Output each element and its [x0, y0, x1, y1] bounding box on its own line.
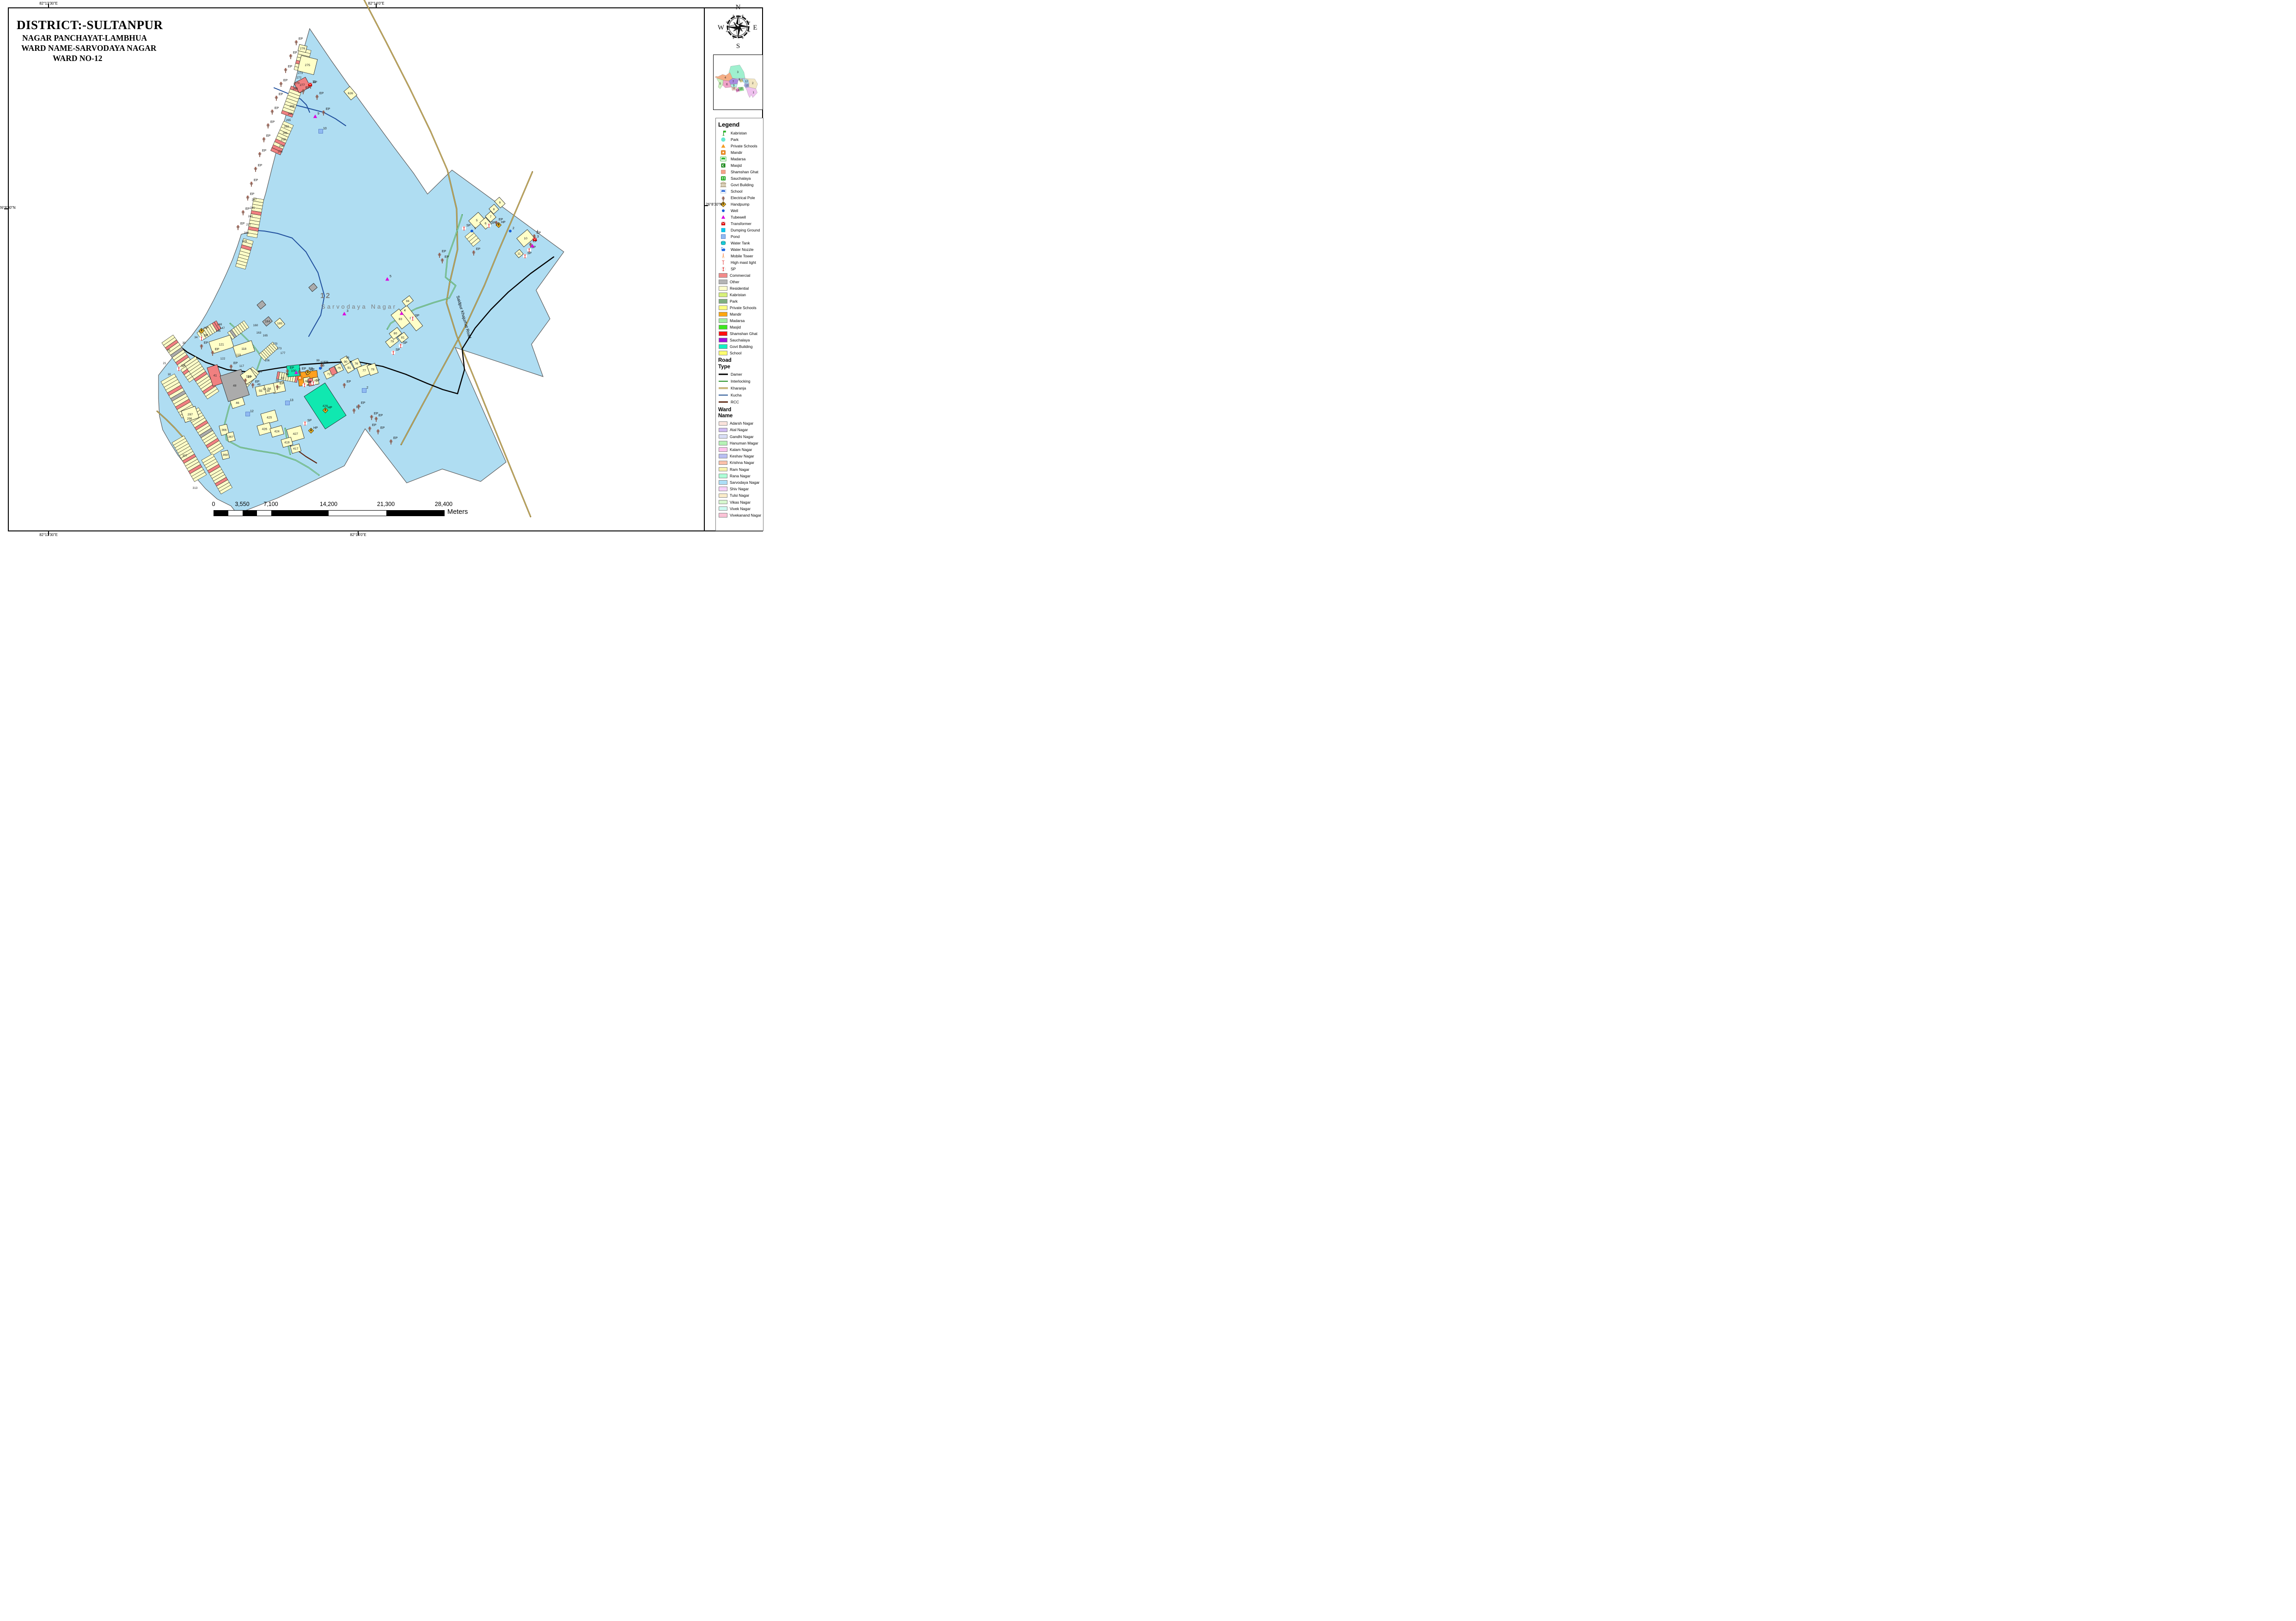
legend-ward-sarvodaya-nagar: Sarvodaya Nagar [718, 479, 762, 486]
scale-segment [214, 511, 228, 516]
parcel-number: 241 [248, 215, 253, 218]
parcel-number: 367 [228, 436, 234, 439]
feature-label: 6 [323, 364, 324, 367]
legend-item-label: Hanuman Magar [730, 441, 758, 445]
road-line-sample [718, 400, 728, 404]
sp-icon [177, 366, 181, 371]
ward-swatch [719, 441, 727, 445]
masjid-icon [718, 162, 728, 169]
feature-label: EP [305, 86, 310, 90]
feature-label: 2 [513, 227, 514, 230]
scale-bar: 03,5507,10014,20021,30028,400 Meters [203, 501, 481, 522]
parcel-number: 427 [293, 433, 299, 436]
legend-item-label: Govt Building [730, 344, 752, 349]
parcel-number: 160 [253, 324, 258, 327]
compass-s: S [736, 43, 740, 50]
sp-icon [302, 383, 306, 387]
legend-item-label: Sarvodaya Nagar [730, 480, 760, 485]
feature-label: EP [279, 93, 283, 96]
feature-label: 4 [404, 309, 406, 312]
legend-item-label: Pond [731, 234, 739, 239]
ep-icon [718, 195, 728, 201]
feature-label: EP [255, 380, 260, 384]
feature-label: EP [245, 207, 250, 211]
parcel-number: 53 [263, 388, 266, 391]
compass-rose: NESW [715, 3, 761, 51]
electrical-pole-icon [263, 138, 266, 142]
feature-label: SP [403, 341, 408, 345]
legend-ward-ram-nagar: Ram Nagar [718, 466, 762, 473]
feature-label: EP [262, 149, 267, 152]
parcel-number: 425 [267, 416, 272, 419]
legend-item-label: Mandir [730, 312, 741, 317]
electrical-pole-icon [289, 55, 293, 59]
parcel-number: 626 [348, 92, 354, 95]
parcel-number: 229 [242, 240, 247, 243]
legend-item-label: Shiv Nagar [730, 487, 749, 491]
legend-road-kharanja: Kharanja [718, 385, 762, 392]
legend-item-label: Sauchalaya [730, 338, 750, 342]
legend-fill-items: CommercialOtherResidentialKabristanParkP… [718, 272, 762, 356]
legend-item-label: Kabristan [731, 131, 747, 135]
parcel-number: 297 [188, 413, 193, 416]
graticule-tick [48, 531, 49, 536]
legend-item-kabristan: Kabristan [718, 130, 762, 136]
feature-label: EP [442, 250, 446, 253]
feature-label: EP [270, 121, 275, 124]
feature-label: 1 [474, 227, 476, 230]
well-icon [319, 367, 322, 370]
parcel-number: 184 [265, 320, 270, 323]
parcel-number: 277 [299, 84, 305, 87]
feature-label: EP [290, 366, 294, 370]
feature-label: EP [204, 341, 208, 345]
parcel-number: 78 [371, 368, 374, 371]
legend-fill-shamshan-ghat: Shamshan Ghat [718, 330, 762, 337]
legend-item-govt: Govt Building [718, 182, 762, 188]
legend-fill-govt-building: Govt Building [718, 343, 762, 350]
index-ward-number: 14 [736, 89, 739, 92]
graticule-tick [4, 208, 8, 209]
feature-label: SP [307, 419, 312, 422]
legend-fill-private-schools: Private Schools [718, 305, 762, 311]
parcel-number: 258 [281, 138, 286, 141]
scale-label-4: 21,300 [377, 501, 395, 507]
feature-label: 2 [366, 386, 368, 390]
parcel-number: 48 [233, 384, 237, 387]
feature-label: EP [254, 179, 258, 182]
legend-fill-kabristan: Kabristan [718, 292, 762, 298]
feature-label: HP [501, 221, 506, 224]
electrical-pole-icon [295, 41, 298, 45]
ward-swatch [719, 461, 727, 465]
feature-label: EP [266, 134, 271, 138]
legend-item-label: Gandhi Nagar [730, 434, 754, 439]
legend-item-school: School [718, 188, 762, 195]
feature-label: SP [415, 314, 420, 317]
index-ward-1 [745, 87, 757, 98]
feature-label: SP [181, 365, 186, 368]
parcel-number: 81 [401, 336, 405, 340]
parcel-number: 7 [490, 215, 492, 219]
legend-item-well: Well [718, 207, 762, 214]
fill-swatch [719, 344, 727, 349]
shamshan-icon [718, 169, 728, 175]
ward-swatch [719, 494, 727, 498]
legend-item-label: Commercial [730, 273, 750, 278]
watertank-icon [718, 240, 728, 246]
legend-fill-masjid: Masjid [718, 324, 762, 330]
legend-item-label: Mobile Tower [731, 254, 753, 258]
parcel-number: 276 [300, 47, 305, 50]
feature-label: EP [361, 402, 366, 405]
feature-label: HP [328, 406, 332, 409]
legend-item-highmast: High mast light [718, 259, 762, 266]
legend-fill-madarsa: Madarsa [718, 317, 762, 324]
legend-item-label: Interlocking [731, 379, 750, 384]
legend-item-label: Vikas Nagar [730, 500, 751, 505]
legend-ward-keshav-nagar: Keshav Nagar [718, 453, 762, 459]
feature-label: EP [288, 65, 293, 68]
parcel-number: 121 [219, 343, 224, 347]
parcel-number: 185 [277, 322, 283, 325]
parcel-number: 266 [288, 112, 293, 116]
feature-label: EP [299, 37, 303, 41]
parcel-number: 83 [399, 317, 403, 321]
legend-item-handpump: Handpump [718, 201, 762, 207]
feature-label: HP [204, 327, 208, 330]
nagar-panchayat-title: NAGAR PANCHAYAT-LAMBHUA [22, 33, 163, 43]
scale-label-3: 14,200 [320, 501, 337, 507]
legend-item-label: Well [731, 208, 738, 213]
parcel-number: 270 [295, 82, 300, 85]
legend-road-kucha: Kucha [718, 392, 762, 399]
ward-index-map: 342567810121391114151 [713, 55, 763, 110]
ward-number-label: 12 [320, 292, 331, 300]
scale-label-5: 28,400 [435, 501, 452, 507]
legend-item-label: Kucha [731, 393, 742, 397]
sp-icon [311, 381, 315, 385]
legend-item-label: Private Schools [731, 144, 757, 148]
feature-label: 11 [312, 80, 316, 84]
legend-item-label: Shamshan Ghat [730, 331, 757, 336]
feature-label: HP [310, 368, 315, 372]
legend-ward-krishna-nagar: Krishna Nagar [718, 459, 762, 466]
parcel-number: 307 [183, 454, 188, 457]
legend-ward-kalam-nagar: Kalam Nagar [718, 446, 762, 453]
tower-icon [718, 253, 728, 259]
parcel-number: 419 [284, 441, 290, 444]
feature-label: EP [319, 92, 324, 95]
legend-ward-items: Adarsh NagarAtal NagarGandhi NagarHanuma… [718, 420, 762, 518]
parcel-number: 247 [252, 198, 257, 201]
index-ward-number: 10 [739, 79, 743, 82]
legend-heading: Legend [718, 121, 762, 128]
feature-label: EP [326, 108, 330, 111]
parcel-number: 366 [221, 428, 227, 432]
parcel-number: 272 [297, 76, 302, 79]
legend-item-label: Sauchalaya [731, 176, 751, 181]
scale-bar-blocks [214, 510, 445, 516]
transformer-icon [718, 220, 728, 227]
feature-label: 13 [290, 399, 293, 402]
legend-item-ep: Electrical Pole [718, 195, 762, 201]
parcel-number: 6 [485, 222, 487, 225]
sp-icon [718, 266, 728, 272]
sauchalaya-icon [718, 175, 728, 182]
legend-item-dumping: Dumping Ground [718, 227, 762, 233]
map-sheet: 2752762776261211184148466710018418542829… [0, 0, 765, 540]
legend-ward-rana-nagar: Rana Nagar [718, 473, 762, 479]
sp-icon [303, 421, 307, 425]
tubewell-icon [718, 214, 728, 220]
school-icon [718, 188, 728, 195]
parcel-number: 62 [281, 377, 285, 380]
park-icon [718, 136, 728, 143]
legend-item-label: Water Nozzle [731, 247, 754, 252]
ward-swatch [719, 500, 727, 505]
parcel-number: 275 [305, 64, 311, 67]
parcel-number: 233 [244, 232, 249, 235]
legend-item-label: Madarsa [731, 157, 745, 161]
parcel-number: 9 [499, 201, 501, 205]
legend-ward-vikas-nagar: Vikas Nagar [718, 499, 762, 505]
legend-item-label: Dumping Ground [731, 228, 760, 232]
legend-item-sp: SP [718, 266, 762, 272]
fill-swatch [719, 318, 727, 323]
feature-label: 9 [318, 112, 319, 116]
legend-item-madarsa: Madarsa [718, 156, 762, 162]
feature-label: SP [316, 379, 320, 382]
parcel-number: 8 [493, 208, 495, 211]
parcel-number: 10 [524, 237, 527, 240]
ward-name-label: Sarvodaya Nagar [321, 303, 397, 310]
feature-label: EP [379, 414, 383, 417]
legend-item-label: Electrical Pole [731, 195, 755, 200]
parcel-number: 268 [290, 105, 295, 108]
madarsa-icon [718, 156, 728, 162]
kabristan-icon [718, 130, 728, 136]
parcel-number: 11 [518, 252, 521, 256]
legend-ward-atal-nagar: Atal Nagar [718, 427, 762, 433]
parcel-number: 72 [327, 373, 331, 376]
parcel-number: 273 [298, 72, 303, 75]
fill-swatch [719, 280, 727, 284]
parcel-number: 99 [316, 359, 320, 362]
parcel-number: 146 [216, 329, 221, 333]
legend-road-items: DamerInterlockingKharanjaKuchaRCC [718, 371, 762, 406]
transformer-icon [308, 83, 312, 86]
road-line-sample [718, 372, 728, 376]
transformer-icon [533, 238, 537, 241]
parcel-number: 313 [193, 487, 198, 490]
parcel-number: 79 [391, 340, 394, 343]
parcel-number: 163 [256, 331, 262, 335]
parcel-number: 261 [283, 132, 288, 135]
scale-segment [257, 511, 271, 516]
feature-label: EP [302, 367, 306, 371]
scale-label-2: 7,100 [263, 501, 278, 507]
legend-ward-gandhi-nagar: Gandhi Nagar [718, 433, 762, 440]
private-school-icon [718, 143, 728, 149]
road-line-sample [718, 393, 728, 397]
legend-item-label: Handpump [731, 202, 750, 207]
legend-item-label: Adarsh Nagar [730, 421, 753, 426]
ward-swatch [719, 428, 727, 433]
fill-swatch [719, 325, 727, 329]
index-ward-number: 11 [733, 87, 736, 90]
pond-icon [246, 412, 250, 416]
legend-item-label: Kharanja [731, 386, 746, 390]
parcel-number: 77 [362, 369, 366, 372]
graticule-label: 26°8'30"N [706, 202, 722, 207]
fill-swatch [719, 312, 727, 317]
parcel-number: 426 [262, 427, 268, 431]
legend-item-label: Masjid [730, 325, 741, 329]
legend-item-park: Park [718, 136, 762, 143]
parcel-number: 148 [217, 323, 222, 326]
parcel-number: 34 [194, 336, 198, 339]
scale-segment [386, 511, 444, 516]
electrical-pole-icon [242, 211, 245, 215]
legend-fill-school: School [718, 350, 762, 356]
feature-label: EP [280, 382, 284, 385]
legend-item-label: Kalam Nagar [730, 447, 752, 452]
feature-label: EP [250, 193, 255, 196]
sp-icon [523, 254, 527, 258]
electrical-pole-icon [250, 182, 253, 187]
legend-item-label: SP [731, 267, 736, 271]
feature-label: 5 [390, 275, 391, 278]
ward-swatch [719, 474, 727, 478]
scale-label-1: 3,550 [235, 501, 249, 507]
parcel-number: 269 [293, 87, 298, 91]
legend-item-transformer: Transformer [718, 220, 762, 227]
legend-item-label: Vivek Nagar [730, 506, 751, 511]
sp-icon [487, 223, 491, 227]
legend-ward-tulsi-nagar: Tulsi Nagar [718, 492, 762, 499]
legend-item-label: School [731, 189, 742, 194]
fill-swatch [719, 305, 727, 310]
legend-item-label: Govt Building [731, 183, 753, 187]
well-icon [470, 230, 473, 232]
feature-label: SP [204, 334, 208, 337]
legend-item-label: Atal Nagar [730, 427, 748, 432]
parcel-number: 119 [236, 353, 241, 357]
feature-label: EP [215, 348, 220, 351]
legend-item-label: Park [730, 299, 738, 304]
govt-icon [718, 182, 728, 188]
scale-segment [271, 511, 329, 516]
feature-label: EP [248, 376, 252, 379]
ward-name-heading: WardName [718, 407, 762, 420]
feature-label: EP [258, 164, 263, 167]
legend-item-label: Tulsi Nagar [730, 493, 749, 498]
legend-road-damer: Damer [718, 371, 762, 378]
legend-item-watertank: Water Tank [718, 240, 762, 246]
feature-label: EP [393, 437, 398, 440]
parcel-number: 76 [354, 362, 358, 366]
ward-swatch [719, 506, 727, 511]
feature-label: EP [445, 256, 449, 259]
legend-item-label: Damer [731, 372, 742, 377]
compass-w: W [718, 24, 725, 31]
sp-icon [199, 336, 203, 340]
parcel-number: 106 [265, 359, 270, 362]
nozzle-icon [718, 246, 728, 253]
parcel-number: 91 [348, 366, 351, 370]
parcel-number: 170 [273, 342, 278, 346]
legend-item-label: Shamshan Ghat [731, 170, 758, 174]
fill-swatch [719, 351, 727, 355]
parcel-number: 80 [394, 332, 397, 335]
scale-bar-unit: Meters [447, 508, 468, 516]
ward-swatch [719, 513, 727, 518]
pond-icon [718, 233, 728, 240]
legend-item-tower: Mobile Tower [718, 253, 762, 259]
index-ward-number: 12 [745, 80, 748, 83]
graticule-tick [358, 531, 359, 536]
parcel-number: 165 [263, 334, 268, 337]
legend-item-private-school: Private Schools [718, 143, 762, 149]
legend-item-masjid: Masjid [718, 162, 762, 169]
index-ward-number: 15 [739, 88, 743, 91]
sp-icon [462, 226, 466, 230]
legend-item-shamshan: Shamshan Ghat [718, 169, 762, 175]
compass-n: N [736, 4, 741, 11]
feature-label: EP [537, 232, 541, 235]
legend-ward-vivekanand-nagar: Vivekanand Nagar [718, 512, 762, 518]
legend-ward-hanuman-magar: Hanuman Magar [718, 440, 762, 446]
legend-ward-shiv-nagar: Shiv Nagar [718, 486, 762, 492]
pond-icon [286, 401, 290, 405]
legend-item-label: Transformer [731, 221, 751, 226]
feature-label: EP [324, 361, 329, 364]
legend-item-mandir: Mandir [718, 149, 762, 156]
legend-ward-adarsh-nagar: Adarsh Nagar [718, 420, 762, 427]
legend-item-label: Ram Nagar [730, 467, 749, 472]
parcel-number: 424 [274, 430, 280, 433]
legend-point-items: KabristanParkPrivate SchoolsMandirMadars… [718, 130, 762, 272]
legend-item-tubewell: Tubewell [718, 214, 762, 220]
feature-label: 3 [347, 310, 348, 313]
legend-fill-mandir: Mandir [718, 311, 762, 317]
legend-item-sauchalaya: Sauchalaya [718, 175, 762, 182]
parcel-number: 256 [279, 145, 284, 148]
legend-item-label: Mandir [731, 150, 742, 155]
legend-fill-commercial: Commercial [718, 272, 762, 279]
legend-item-label: Park [731, 137, 739, 142]
ward-swatch [719, 447, 727, 452]
parcel-number: 245 [250, 207, 255, 210]
parcel-number: 117 [239, 365, 244, 368]
legend-road-interlocking: Interlocking [718, 378, 762, 385]
legend-item-label: Masjid [731, 163, 742, 168]
electrical-pole-icon [275, 96, 278, 101]
parcel-number: 263 [284, 125, 289, 128]
electrical-pole-icon [237, 225, 240, 230]
legend-item-label: Kabristan [730, 293, 746, 297]
graticule-tick [48, 4, 49, 8]
ward-no-title: WARD NO-12 [53, 54, 163, 64]
parcel-number: 84 [406, 300, 409, 303]
scale-segment [329, 511, 386, 516]
feature-label: EP [374, 412, 379, 415]
graticule-tick [704, 205, 708, 206]
legend-fill-residential: Residential [718, 285, 762, 292]
compass-e: E [753, 24, 757, 31]
fill-swatch [719, 293, 727, 297]
